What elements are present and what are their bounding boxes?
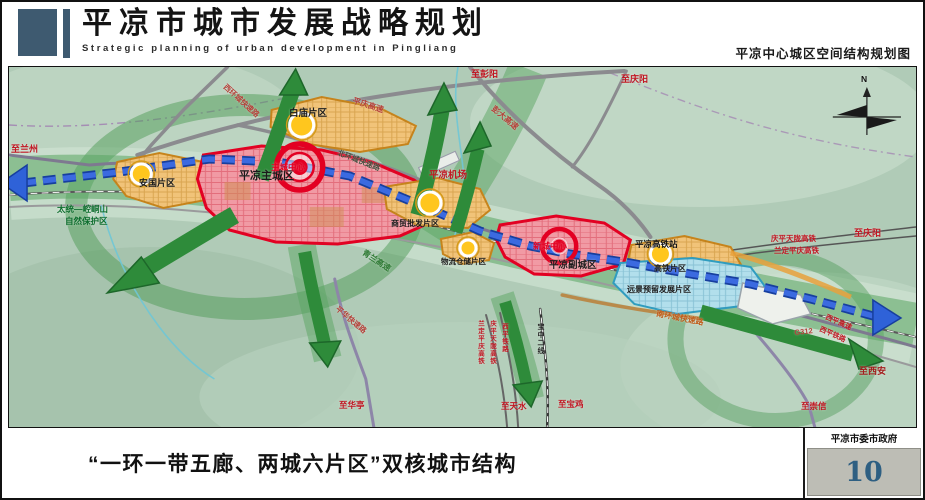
map-label-to-xian: 至西安 (859, 367, 886, 376)
agency-label: 平凉市委市政府 (805, 428, 923, 447)
page-number: 10 (845, 457, 883, 488)
map-label-baimiao-district: 白庙片区 (289, 109, 327, 119)
page-subtitle: Strategic planning of urban development … (82, 43, 489, 54)
map-label-nature-reserve-line2: 自然保护区 (65, 217, 108, 226)
logo-square (18, 9, 57, 56)
map-label-main-city: 平凉主城区 (239, 171, 294, 182)
map-label-to-chongxin: 至崇信 (801, 402, 827, 411)
map-label-vertical-landing-hsr: 兰定平庆高铁 (476, 320, 483, 365)
map-label-to-qingyang-north: 至庆阳 (621, 75, 648, 84)
page-title: 平凉市城市发展战略规划 (82, 6, 489, 42)
map-label-to-tianshui: 至天水 (501, 402, 527, 411)
map-label-to-qingyang-east: 至庆阳 (854, 229, 881, 238)
map-label-to-huating: 至华亭 (339, 401, 365, 410)
agency-box: 平凉市委市政府 10 (803, 428, 923, 498)
header: 平凉市城市发展战略规划 Strategic planning of urban … (2, 2, 923, 66)
map-label-to-pengyang: 至彭阳 (471, 70, 498, 79)
map-label-to-lanzhou: 至兰州 (11, 145, 38, 154)
page-number-box: 10 (807, 448, 921, 496)
map-label-airport: 平凉机场 (429, 171, 467, 181)
map-label-anguo-district: 安国片区 (139, 179, 175, 188)
map-label-vertical-xiping-railway: 西平铁路 (500, 323, 507, 353)
map-label-nature-reserve-line1: 太统—崆峒山 (57, 205, 108, 214)
map-caption: 平凉中心城区空间结构规划图 (735, 43, 911, 62)
map-label-landing-hsr: 兰定平庆高铁 (774, 247, 819, 255)
footer: “一环一带五廊、两城六片区”双核城市结构 平凉市委市政府 10 (2, 428, 923, 498)
map-label-vertical-qingping-hsr: 庆平天陇高铁 (488, 320, 495, 365)
structure-caption: “一环一带五廊、两城六片区”双核城市结构 (88, 448, 517, 478)
logo-bar (63, 9, 70, 58)
map-label-to-baoji: 至宝鸡 (558, 400, 584, 409)
map-label-g312: G312 (794, 327, 813, 336)
map-label-main-city-center: 主城中心 (271, 163, 305, 172)
title-block: 平凉市城市发展战略规划 Strategic planning of urban … (82, 6, 489, 54)
map-label-reserved-district: 远景预留发展片区 (627, 286, 691, 294)
planning-document-page: 平凉市城市发展战略规划 Strategic planning of urban … (0, 0, 925, 500)
map-label-hsr-station: 平凉高铁站 (635, 240, 678, 249)
map-label-compass-n: N (861, 75, 867, 84)
map-label-shangmao-district: 商贸批发片区 (391, 220, 439, 228)
map-label-qingping-hsr: 庆平天陇高铁 (771, 235, 816, 243)
map-label-vertical-baozhong-line: 宝中二线 (537, 323, 544, 355)
map-label-new-city-center: 新城中心 (533, 242, 567, 251)
planning-map: 至兰州 西环城快速路 平庆高速 至彭阳 彭大高速 至庆阳 北环城快速路 白庙片区… (8, 66, 917, 428)
map-label-wuliu-district: 物流仓储片区 (441, 258, 486, 266)
map-label-sub-city: 平凉副城区 (549, 261, 597, 271)
map-label-gaotie-district: 高铁片区 (654, 265, 686, 273)
